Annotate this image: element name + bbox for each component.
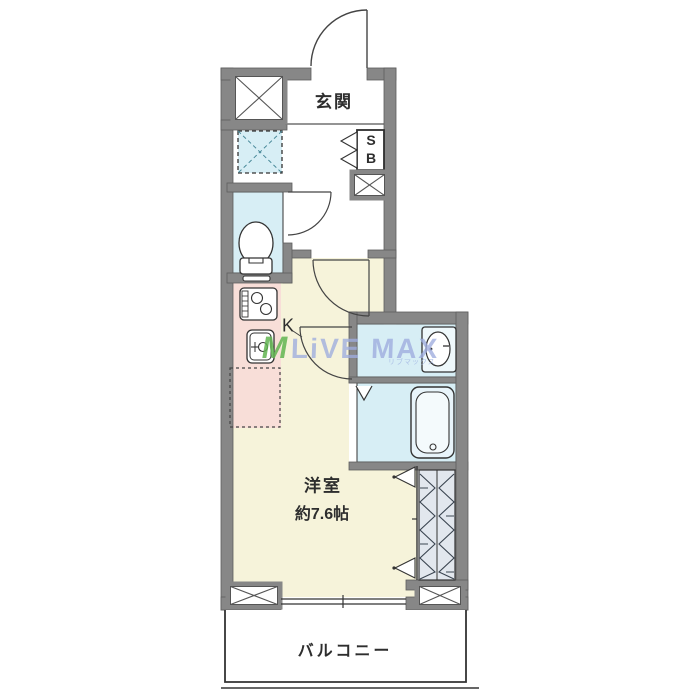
- washing-machine-space-icon: [238, 131, 282, 173]
- kitchen-stove-icon: [240, 288, 277, 320]
- wall-wash-bath-divider: [349, 377, 456, 383]
- wall-bath-bottom: [349, 462, 468, 470]
- pillar-top-left: [233, 74, 285, 122]
- wall-left: [221, 68, 233, 610]
- shoe-box-label-b: B: [366, 150, 376, 166]
- bathtub-icon: [411, 387, 454, 458]
- pillar-bottom-left: [228, 584, 280, 607]
- pillar-bottom-right: [417, 584, 463, 607]
- wall-toilet-top: [227, 183, 292, 192]
- entrance-door-icon: [311, 10, 367, 68]
- main-room-size-label: 約7.6帖: [295, 500, 349, 524]
- wall-right-lower: [456, 312, 468, 610]
- main-room-label: 洋室: [304, 472, 342, 497]
- entrance-label: 玄関: [315, 88, 353, 113]
- wall-hall-divider-right: [368, 250, 396, 258]
- toilet-icon: [239, 222, 273, 281]
- balcony-label: バルコニー: [298, 637, 393, 661]
- wall-washroom-top: [349, 312, 468, 324]
- floorplan-page: 玄関 S B K 洋室 約7.6帖 バルコニー M LiVE MAX リブマック…: [0, 0, 700, 700]
- shoe-box-label-s: S: [366, 132, 375, 148]
- watermark-subtext: リブマックス: [388, 357, 436, 367]
- pillar-under-shoebox: [352, 172, 387, 198]
